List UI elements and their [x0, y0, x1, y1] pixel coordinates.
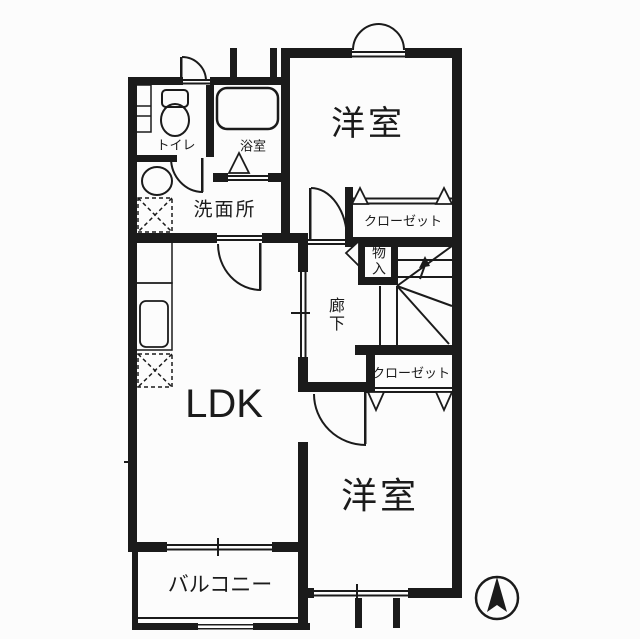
closet-bottom-bifold-icon-left: [368, 392, 384, 410]
bathtub-icon: [217, 88, 278, 129]
label-balcony: バルコニー: [168, 575, 273, 596]
toilet-icon: [161, 90, 189, 136]
stairs: [379, 246, 452, 345]
label-toilet: トイレ: [156, 139, 195, 152]
label-bath: 浴室: [240, 140, 266, 153]
label-ldk: LDK: [185, 384, 263, 424]
north-arrow-icon: [476, 577, 518, 619]
floor-plan: トイレ 浴室 洗面所 洋室 クローゼット 物入 廊下 LDK クローゼット 洋室…: [0, 0, 640, 639]
sliding-window-tick: [217, 538, 219, 556]
kitchen-counter-icon: [135, 242, 172, 350]
label-storage: 物入: [372, 245, 386, 277]
washing-machine-box: [138, 198, 172, 232]
toilet-door: [171, 158, 204, 192]
label-closet-bottom: クローゼット: [372, 367, 450, 380]
refrigerator-box: [138, 354, 172, 387]
closet-top-bifold-icon-left: [352, 188, 368, 204]
casement-window-arc-right: [379, 24, 404, 50]
floor-plan-drawing: [0, 0, 640, 639]
wash-basin-icon: [142, 167, 172, 195]
bedroom-top-door: [309, 188, 347, 240]
casement-window-arc-left: [353, 24, 379, 50]
closet-bottom-bifold-icon-right: [436, 392, 452, 410]
label-washroom: 洗面所: [193, 201, 256, 220]
label-closet-top: クローゼット: [364, 215, 442, 228]
sliding-door-tick: [291, 312, 310, 314]
bedroom-bottom-door: [314, 392, 367, 445]
label-hallway: 廊下: [326, 297, 342, 333]
kitchen-sink-icon: [140, 301, 168, 347]
closet-top-bifold-icon-right: [436, 188, 452, 204]
label-bedroom-top: 洋室: [331, 107, 405, 141]
bath-folding-door-icon: [229, 153, 249, 173]
washroom-door: [218, 243, 262, 290]
label-bedroom-bottom: 洋室: [341, 478, 419, 514]
entry-door: [180, 57, 206, 81]
